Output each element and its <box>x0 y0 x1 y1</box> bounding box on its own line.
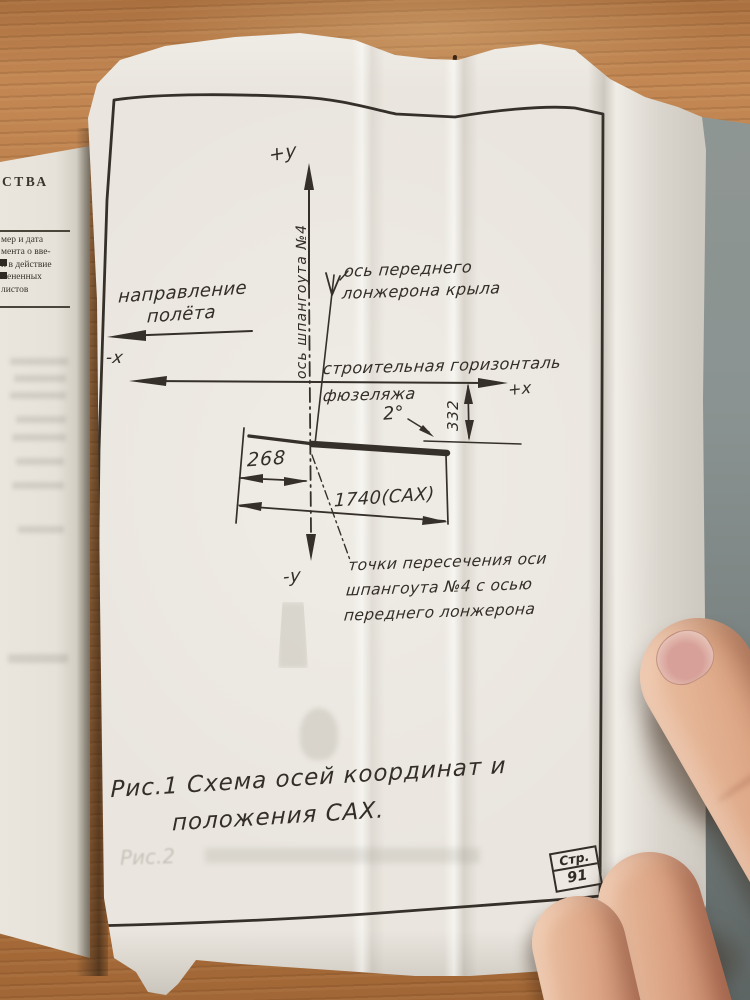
showthrough-text <box>12 434 66 441</box>
showthrough-text <box>18 526 64 533</box>
spar-axis-label: ось переднего лонжерона крыла <box>341 255 503 305</box>
dim-268-arrow-right <box>284 477 308 486</box>
x-axis-arrow-right <box>478 378 508 388</box>
incidence-angle-label: 2° <box>382 402 405 424</box>
left-page-line: листов <box>1 284 73 296</box>
flight-arrow-head <box>107 330 146 341</box>
cutoff-char-mark <box>0 259 7 266</box>
leading-edge-extension <box>236 428 244 523</box>
dimension-332: 332 <box>444 399 462 431</box>
left-page-text-block: мер и дата мента о вве- и в действие мен… <box>1 234 73 296</box>
left-page-heading-fragment: СТВА <box>2 174 49 190</box>
left-page-rule-bottom <box>0 306 70 308</box>
dim-268-arrow-left <box>238 474 263 483</box>
chord-line-thick <box>312 444 447 453</box>
page-number-box: Стр. 91 <box>549 845 603 893</box>
showthrough-text <box>8 654 68 663</box>
axis-label-plus-x: +х <box>508 378 532 400</box>
main-page: +у ось шпангоута №4 направление полёта -… <box>0 0 750 1000</box>
y-axis-arrow-down <box>306 534 316 561</box>
intersection-note: точки пересечения оси шпангоута №4 с ось… <box>343 546 548 628</box>
x-axis-arrow-left <box>129 376 167 386</box>
left-page-rule-top <box>0 230 70 232</box>
y-axis-arrow-up <box>304 163 314 190</box>
showthrough-text <box>12 482 64 489</box>
left-page-line: мененных <box>1 271 73 283</box>
dim-332-arrow-down <box>465 420 474 441</box>
trailing-edge-extension <box>446 455 448 524</box>
dim-332-arrow-up <box>464 383 473 404</box>
ghost-caption-fragment: Рис.2 <box>120 844 176 870</box>
photo-scene: СТВА мер и дата мента о вве- и в действи… <box>0 0 750 1000</box>
left-page-line: мер и дата <box>1 234 73 246</box>
x-axis-line <box>150 381 486 383</box>
showthrough-text <box>16 416 66 423</box>
cutoff-char-mark <box>0 272 7 279</box>
dimension-268: 268 <box>247 447 287 472</box>
axis-label-minus-y: -у <box>283 565 302 588</box>
left-page-line: мента о вве- <box>1 246 73 258</box>
frame-axis-label: ось шпангоута №4 <box>294 224 310 379</box>
showthrough-text <box>10 358 68 365</box>
axis-label-minus-x: -х <box>105 348 125 368</box>
chord-line-thin <box>249 436 314 444</box>
showthrough-text <box>14 375 66 382</box>
showthrough-text <box>10 392 66 399</box>
ghost-caption-smudge <box>205 848 480 863</box>
finger-crease <box>716 747 750 803</box>
showthrough-text <box>16 458 64 465</box>
dim-332-bottom-extension <box>424 441 521 444</box>
left-page-line: и в действие <box>1 259 73 271</box>
